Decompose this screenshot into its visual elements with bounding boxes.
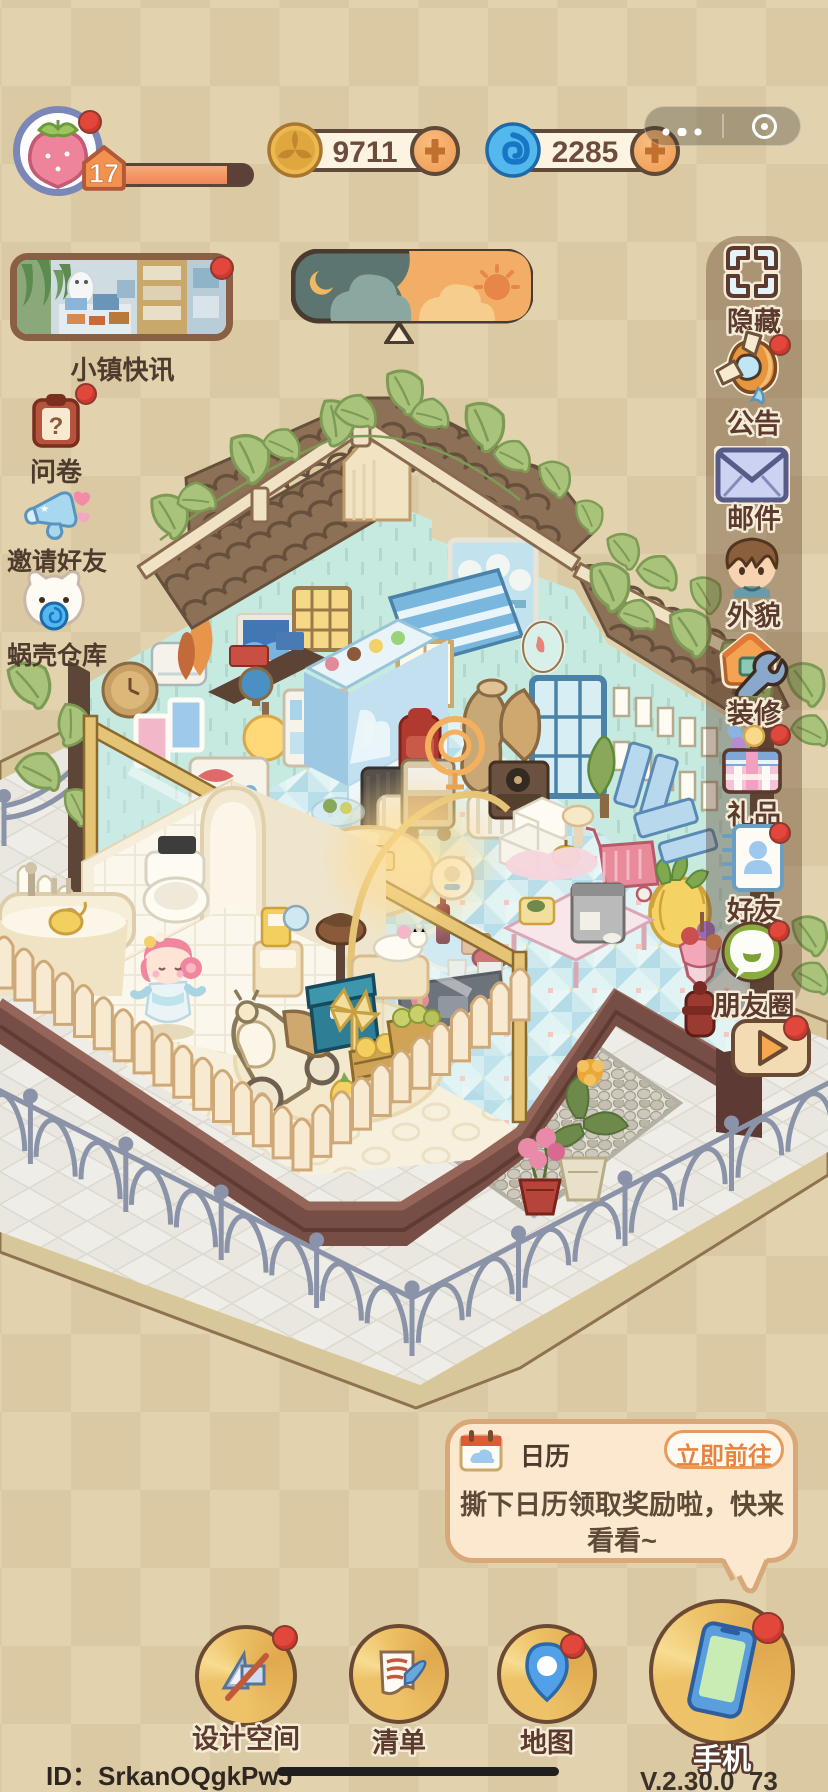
svg-text:?: ? (49, 413, 64, 440)
svg-text:17: 17 (89, 159, 119, 189)
